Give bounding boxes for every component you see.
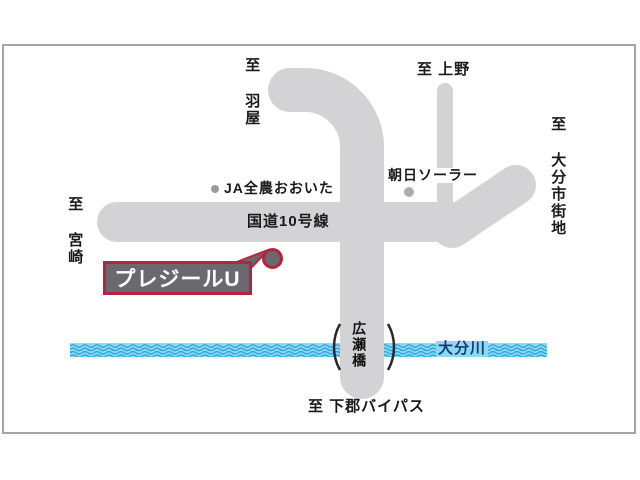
ja-zennoh-marker-dot bbox=[211, 185, 219, 193]
asahi-solar-marker-dot bbox=[404, 187, 414, 197]
label-route10: 国道10号線 bbox=[247, 214, 330, 230]
label-to-miyazaki: 至 宮崎 bbox=[66, 196, 82, 266]
label-to-ueno: 至 上野 bbox=[417, 62, 470, 78]
label-oita-river: 大分川 bbox=[436, 341, 488, 357]
label-ja-zennoh-oita: JA全農おおいた bbox=[224, 181, 334, 196]
label-hirose-bridge: 広瀬橋 bbox=[351, 321, 366, 369]
label-to-shimogori-bypass: 至 下郡バイパス bbox=[308, 399, 425, 415]
map-page: 至 羽屋 至 上野 至 大分市街地 至 宮崎 JA全農おおいた 国道10号線 朝… bbox=[0, 0, 640, 480]
label-to-oita-city: 至 大分市街地 bbox=[549, 116, 565, 237]
map-frame bbox=[2, 44, 636, 434]
label-to-haneya: 至 羽屋 bbox=[243, 57, 259, 127]
poi-label-plaisir-u: プレジールU bbox=[103, 261, 252, 295]
poi-label-text: プレジールU bbox=[114, 263, 240, 293]
label-asahi-solar: 朝日ソーラー bbox=[386, 168, 480, 183]
poi-marker-dot bbox=[262, 248, 283, 269]
